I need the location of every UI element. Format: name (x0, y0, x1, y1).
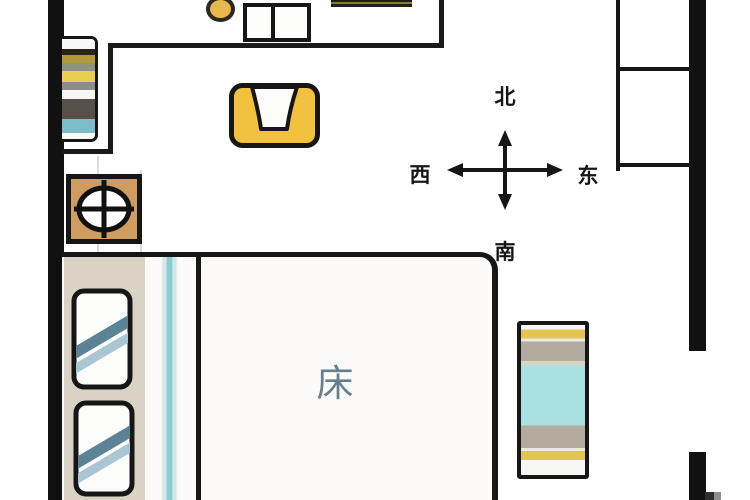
shelf-stripe (62, 39, 95, 49)
pillow-icon (73, 400, 135, 497)
side-table-divider (271, 7, 275, 38)
door-opening (689, 351, 706, 452)
compass-arrows-icon (447, 130, 563, 210)
wall-shelf (62, 36, 98, 142)
pillow-icon (71, 288, 133, 390)
interior-wall-segment-top (108, 43, 444, 48)
side-table (243, 3, 311, 42)
pillow-top (71, 288, 133, 390)
burner-icon (65, 173, 143, 245)
shelf-stripe (62, 55, 95, 63)
watermark-fragment (705, 492, 721, 500)
compass-east-label: 东 (570, 160, 606, 190)
compass-west-label: 西 (402, 159, 438, 189)
shelf-stripe (62, 63, 95, 71)
wardrobe-section-1 (620, 0, 693, 71)
armchair-icon (228, 82, 321, 149)
shelf-stripe (62, 71, 95, 82)
shelf-stripe (62, 119, 95, 133)
wardrobe (616, 0, 693, 171)
pillow-bottom (73, 400, 135, 497)
armchair (228, 82, 321, 149)
stove-burner (65, 173, 143, 245)
compass (447, 130, 563, 210)
wardrobe-section-2 (620, 71, 693, 167)
bed-edge-line (196, 257, 201, 500)
bench (517, 321, 589, 479)
shelf-stripe (62, 82, 95, 90)
shelf-stripe (62, 90, 95, 99)
round-stool (206, 0, 235, 22)
compass-north-label: 北 (447, 81, 563, 111)
interior-wall-segment-bottom (62, 149, 113, 154)
bed-label: 床 (300, 362, 370, 406)
interior-wall-segment-upper (439, 0, 444, 48)
top-edge-cabinet (331, 0, 412, 7)
floor-plan: 北 南 西 东 床 (0, 0, 750, 500)
right-wall-lower (689, 452, 706, 500)
shelf-stripe (62, 99, 95, 119)
bed-runner (161, 257, 178, 500)
interior-wall-segment-vertical (108, 45, 113, 154)
